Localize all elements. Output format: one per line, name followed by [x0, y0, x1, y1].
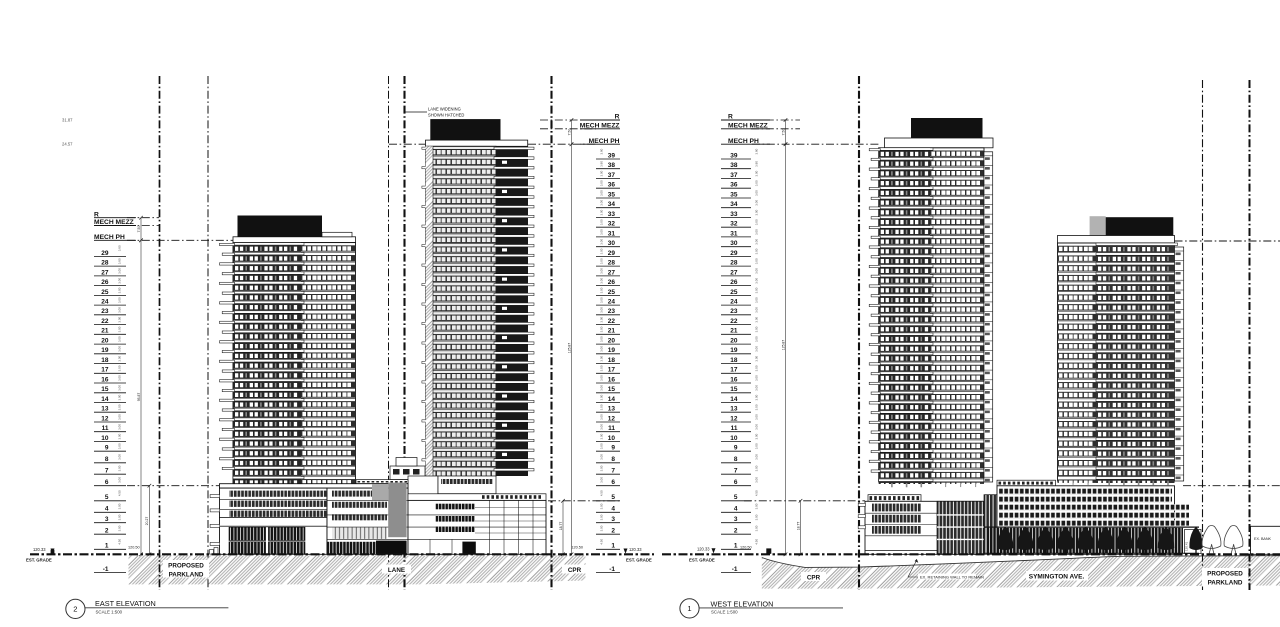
svg-text:3.00: 3.00: [755, 525, 759, 531]
svg-text:125.87: 125.87: [567, 343, 571, 353]
svg-text:3.80: 3.80: [755, 161, 759, 167]
svg-text:3.00: 3.00: [118, 316, 122, 322]
svg-text:3.00: 3.00: [600, 219, 604, 225]
svg-text:13: 13: [101, 406, 109, 413]
svg-text:3.00: 3.00: [600, 394, 604, 400]
svg-text:3.00: 3.00: [755, 514, 759, 520]
svg-text:17: 17: [730, 367, 738, 374]
svg-text:1: 1: [734, 543, 738, 550]
svg-text:29: 29: [730, 250, 738, 257]
svg-text:3.00: 3.00: [600, 477, 604, 483]
svg-text:8: 8: [105, 456, 109, 463]
svg-text:CPR: CPR: [807, 575, 821, 582]
svg-text:3.00: 3.00: [755, 336, 759, 342]
svg-text:14: 14: [101, 396, 109, 403]
svg-text:EST. GRADE: EST. GRADE: [689, 558, 715, 563]
svg-text:3.00: 3.00: [600, 424, 604, 430]
svg-text:1: 1: [687, 604, 691, 613]
svg-text:38: 38: [608, 162, 616, 169]
svg-text:7: 7: [611, 468, 615, 475]
svg-text:3.00: 3.00: [755, 355, 759, 361]
svg-text:3.00: 3.00: [600, 248, 604, 254]
svg-text:3: 3: [105, 516, 109, 523]
svg-text:24.57: 24.57: [62, 142, 73, 147]
svg-text:9: 9: [611, 445, 615, 452]
svg-text:28: 28: [730, 260, 738, 267]
svg-text:3.00: 3.00: [600, 514, 604, 520]
svg-text:3.00: 3.00: [600, 454, 604, 460]
svg-text:3.00: 3.00: [600, 180, 604, 186]
svg-text:LANE: LANE: [388, 567, 405, 574]
svg-text:3.00: 3.00: [755, 278, 759, 284]
svg-text:8: 8: [611, 456, 615, 463]
svg-text:120.33: 120.33: [33, 547, 46, 552]
svg-text:3.80: 3.80: [118, 245, 122, 251]
svg-text:3.00: 3.00: [600, 365, 604, 371]
svg-text:3.00: 3.00: [755, 170, 759, 176]
svg-text:1: 1: [611, 543, 615, 550]
svg-text:19: 19: [608, 347, 616, 354]
svg-text:3.00: 3.00: [600, 443, 604, 449]
svg-text:22: 22: [101, 318, 109, 325]
svg-text:3.00: 3.00: [118, 433, 122, 439]
svg-text:3.00: 3.00: [600, 404, 604, 410]
svg-text:SHOWN HATCHED: SHOWN HATCHED: [428, 113, 464, 118]
svg-text:21: 21: [101, 328, 109, 335]
svg-text:3.00: 3.00: [755, 385, 759, 391]
svg-text:20: 20: [730, 338, 738, 345]
svg-text:10: 10: [730, 435, 738, 442]
svg-text:3.00: 3.00: [755, 200, 759, 206]
svg-text:3.00: 3.00: [118, 385, 122, 391]
svg-text:27: 27: [608, 269, 616, 276]
svg-text:32: 32: [608, 221, 616, 228]
svg-text:3.80: 3.80: [600, 161, 604, 167]
svg-text:3.00: 3.00: [118, 268, 122, 274]
svg-text:3.00: 3.00: [755, 394, 759, 400]
svg-text:3.00: 3.00: [755, 404, 759, 410]
svg-text:6: 6: [105, 479, 109, 486]
svg-text:7.50: 7.50: [567, 129, 571, 136]
svg-text:3.00: 3.00: [755, 180, 759, 186]
svg-text:14: 14: [730, 396, 738, 403]
svg-text:3.00: 3.00: [755, 239, 759, 245]
svg-text:1: 1: [105, 543, 109, 550]
svg-text:18: 18: [101, 357, 109, 364]
svg-text:3.00: 3.00: [600, 375, 604, 381]
svg-text:3.00: 3.00: [755, 414, 759, 420]
svg-text:EST. GRADE: EST. GRADE: [26, 558, 52, 563]
svg-text:SYMINGTON AVE.: SYMINGTON AVE.: [1029, 574, 1085, 581]
svg-text:3.00: 3.00: [600, 346, 604, 352]
svg-text:8: 8: [734, 456, 738, 463]
svg-text:5: 5: [611, 494, 615, 501]
svg-text:3.80: 3.80: [755, 148, 759, 154]
svg-text:26: 26: [730, 279, 738, 286]
svg-text:3.00: 3.00: [755, 365, 759, 371]
svg-text:EST. GRADE: EST. GRADE: [626, 558, 652, 563]
svg-text:120.41: 120.41: [1185, 541, 1189, 551]
svg-text:4.50: 4.50: [755, 490, 759, 496]
svg-text:3.00: 3.00: [600, 503, 604, 509]
svg-text:3.80: 3.80: [118, 258, 122, 264]
svg-text:4: 4: [611, 506, 615, 513]
svg-text:10: 10: [608, 435, 616, 442]
svg-text:3.00: 3.00: [600, 326, 604, 332]
svg-text:3.00: 3.00: [755, 454, 759, 460]
svg-text:2: 2: [611, 528, 615, 535]
svg-text:7.50: 7.50: [781, 129, 785, 136]
svg-text:4: 4: [734, 506, 738, 513]
svg-text:120.50: 120.50: [128, 546, 140, 550]
svg-text:3.00: 3.00: [755, 248, 759, 254]
svg-text:3.00: 3.00: [755, 346, 759, 352]
svg-text:-1: -1: [732, 566, 738, 573]
svg-text:3.00: 3.00: [118, 355, 122, 361]
svg-text:3.00: 3.00: [118, 365, 122, 371]
svg-text:3.00: 3.00: [600, 355, 604, 361]
svg-text:3.00: 3.00: [118, 424, 122, 430]
svg-text:4.50: 4.50: [118, 490, 122, 496]
svg-text:35: 35: [608, 191, 616, 198]
svg-text:3.00: 3.00: [600, 465, 604, 471]
svg-text:3.00: 3.00: [755, 268, 759, 274]
svg-text:34: 34: [730, 201, 738, 208]
svg-text:3.00: 3.00: [600, 200, 604, 206]
svg-text:20: 20: [101, 338, 109, 345]
svg-text:30: 30: [730, 240, 738, 247]
svg-text:31: 31: [730, 230, 738, 237]
svg-text:PROPOSED: PROPOSED: [168, 563, 204, 570]
svg-text:4.50: 4.50: [118, 539, 122, 545]
svg-text:24: 24: [730, 299, 738, 306]
svg-text:19: 19: [730, 347, 738, 354]
svg-text:6: 6: [611, 479, 615, 486]
svg-text:25: 25: [730, 289, 738, 296]
svg-text:14: 14: [608, 396, 616, 403]
svg-text:10: 10: [101, 435, 109, 442]
svg-text:16: 16: [730, 376, 738, 383]
svg-text:2: 2: [105, 528, 109, 535]
svg-text:3.00: 3.00: [755, 433, 759, 439]
svg-text:3.00: 3.00: [600, 190, 604, 196]
svg-text:35: 35: [730, 191, 738, 198]
svg-text:WEST ELEVATION: WEST ELEVATION: [711, 599, 774, 608]
svg-text:3.00: 3.00: [755, 258, 759, 264]
svg-text:37: 37: [730, 172, 738, 179]
svg-text:3.00: 3.00: [755, 375, 759, 381]
svg-text:-1: -1: [609, 566, 615, 573]
svg-text:39: 39: [608, 152, 616, 159]
svg-text:20: 20: [608, 338, 616, 345]
svg-text:EX. BANK: EX. BANK: [1254, 537, 1272, 541]
svg-text:13: 13: [608, 406, 616, 413]
svg-text:3.00: 3.00: [755, 287, 759, 293]
svg-text:3.00: 3.00: [118, 278, 122, 284]
svg-text:28: 28: [608, 260, 616, 267]
svg-text:34: 34: [608, 201, 616, 208]
svg-text:25: 25: [608, 289, 616, 296]
svg-text:20.27: 20.27: [145, 517, 149, 526]
svg-text:4.50: 4.50: [755, 539, 759, 545]
svg-text:3.00: 3.00: [755, 307, 759, 313]
svg-text:3.00: 3.00: [118, 326, 122, 332]
svg-text:3.00: 3.00: [600, 258, 604, 264]
svg-text:11: 11: [102, 425, 109, 432]
svg-text:19: 19: [101, 347, 109, 354]
svg-text:3.00: 3.00: [755, 209, 759, 215]
svg-text:3.00: 3.00: [600, 433, 604, 439]
svg-text:3.00: 3.00: [755, 326, 759, 332]
svg-text:3.00: 3.00: [118, 307, 122, 313]
svg-text:23: 23: [608, 308, 616, 315]
svg-text:3.00: 3.00: [118, 287, 122, 293]
svg-text:6: 6: [734, 479, 738, 486]
svg-text:9: 9: [734, 445, 738, 452]
svg-text:3.00: 3.00: [755, 190, 759, 196]
svg-text:4: 4: [105, 506, 109, 513]
svg-text:3.00: 3.00: [118, 465, 122, 471]
svg-text:3.00: 3.00: [600, 316, 604, 322]
svg-text:27: 27: [730, 269, 738, 276]
svg-text:3.00: 3.00: [118, 503, 122, 509]
svg-text:27: 27: [101, 269, 109, 276]
svg-text:23: 23: [730, 308, 738, 315]
svg-text:3.00: 3.00: [118, 454, 122, 460]
svg-text:PROPOSED: PROPOSED: [1207, 571, 1243, 578]
svg-text:3.00: 3.00: [600, 287, 604, 293]
svg-text:7.50: 7.50: [137, 226, 141, 233]
svg-text:3.00: 3.00: [600, 278, 604, 284]
svg-text:120.33: 120.33: [697, 547, 710, 552]
svg-text:17: 17: [608, 367, 616, 374]
svg-text:13: 13: [730, 406, 738, 413]
svg-text:3.00: 3.00: [755, 424, 759, 430]
svg-text:3.00: 3.00: [600, 229, 604, 235]
svg-text:3.00: 3.00: [600, 525, 604, 531]
svg-text:18: 18: [730, 357, 738, 364]
svg-text:16: 16: [608, 376, 616, 383]
svg-text:31.87: 31.87: [62, 118, 73, 123]
svg-text:39: 39: [730, 152, 738, 159]
svg-text:LANE WIDENING: LANE WIDENING: [428, 107, 461, 112]
svg-text:SCALE 1:500: SCALE 1:500: [96, 609, 123, 614]
svg-text:15: 15: [608, 386, 616, 393]
svg-text:3.00: 3.00: [755, 219, 759, 225]
svg-text:29: 29: [608, 250, 616, 257]
svg-text:3.00: 3.00: [600, 170, 604, 176]
svg-text:17: 17: [101, 367, 109, 374]
svg-text:EX. RETAINING WALL TO REMAIN: EX. RETAINING WALL TO REMAIN: [920, 575, 984, 580]
svg-text:12: 12: [101, 415, 109, 422]
svg-text:2: 2: [73, 605, 77, 614]
svg-text:29: 29: [101, 250, 109, 257]
svg-text:22: 22: [730, 318, 738, 325]
svg-text:3.00: 3.00: [600, 239, 604, 245]
svg-text:12: 12: [608, 415, 616, 422]
svg-text:33: 33: [608, 211, 616, 218]
svg-text:5: 5: [105, 494, 109, 501]
svg-text:21: 21: [730, 328, 738, 335]
svg-text:2: 2: [734, 528, 738, 535]
svg-text:11: 11: [608, 425, 615, 432]
svg-text:3.00: 3.00: [118, 375, 122, 381]
svg-text:12: 12: [730, 415, 738, 422]
svg-text:3.00: 3.00: [600, 297, 604, 303]
svg-text:24: 24: [608, 299, 616, 306]
svg-text:11: 11: [731, 425, 738, 432]
svg-text:-1: -1: [103, 566, 109, 573]
svg-text:7: 7: [734, 468, 738, 475]
svg-text:3.00: 3.00: [600, 209, 604, 215]
svg-text:PARKLAND: PARKLAND: [169, 572, 204, 579]
svg-text:3.00: 3.00: [600, 336, 604, 342]
svg-text:32: 32: [730, 221, 738, 228]
svg-text:36: 36: [608, 182, 616, 189]
svg-text:7: 7: [105, 468, 109, 475]
svg-text:120.33: 120.33: [629, 547, 642, 552]
svg-text:38: 38: [730, 162, 738, 169]
svg-text:5: 5: [734, 494, 738, 501]
svg-text:CPR: CPR: [568, 567, 582, 574]
svg-text:18.77: 18.77: [559, 522, 563, 531]
svg-text:3.00: 3.00: [600, 307, 604, 313]
svg-text:3.00: 3.00: [118, 394, 122, 400]
svg-text:3.00: 3.00: [118, 514, 122, 520]
svg-text:R: R: [615, 114, 620, 121]
svg-text:18: 18: [608, 357, 616, 364]
svg-text:31: 31: [608, 230, 616, 237]
svg-text:15: 15: [101, 386, 109, 393]
svg-text:33: 33: [730, 211, 738, 218]
svg-text:3.00: 3.00: [755, 443, 759, 449]
svg-text:3.00: 3.00: [755, 477, 759, 483]
svg-text:18.77: 18.77: [796, 522, 800, 531]
svg-text:16: 16: [101, 376, 109, 383]
svg-text:3.00: 3.00: [118, 297, 122, 303]
svg-text:4.50: 4.50: [600, 539, 604, 545]
svg-text:15: 15: [730, 386, 738, 393]
svg-text:3.00: 3.00: [600, 268, 604, 274]
svg-text:120.50: 120.50: [740, 546, 752, 550]
svg-text:125.87: 125.87: [781, 340, 785, 350]
svg-text:3.00: 3.00: [118, 443, 122, 449]
svg-text:24: 24: [101, 299, 109, 306]
svg-text:MECH MEZZ: MECH MEZZ: [580, 122, 620, 129]
svg-text:EAST ELEVATION: EAST ELEVATION: [95, 599, 156, 608]
svg-text:3.00: 3.00: [118, 336, 122, 342]
svg-text:3.00: 3.00: [755, 297, 759, 303]
svg-text:26: 26: [608, 279, 616, 286]
svg-text:3.00: 3.00: [118, 346, 122, 352]
svg-text:21: 21: [608, 328, 616, 335]
svg-text:26: 26: [101, 279, 109, 286]
svg-text:3.00: 3.00: [755, 465, 759, 471]
svg-text:22: 22: [608, 318, 616, 325]
svg-text:3: 3: [734, 516, 738, 523]
svg-text:PARKLAND: PARKLAND: [1208, 580, 1243, 587]
svg-text:MECH MEZZ: MECH MEZZ: [728, 122, 768, 129]
svg-text:3.00: 3.00: [118, 525, 122, 531]
svg-text:R: R: [728, 114, 733, 121]
svg-text:3.00: 3.00: [118, 477, 122, 483]
svg-text:37: 37: [608, 172, 616, 179]
svg-text:4.50: 4.50: [600, 490, 604, 496]
svg-text:36: 36: [730, 182, 738, 189]
svg-text:SCALE 1:500: SCALE 1:500: [711, 610, 738, 615]
svg-text:3.00: 3.00: [118, 414, 122, 420]
svg-text:3.00: 3.00: [755, 229, 759, 235]
svg-text:120.50: 120.50: [571, 546, 583, 550]
svg-text:3.00: 3.00: [600, 414, 604, 420]
svg-text:25: 25: [101, 289, 109, 296]
svg-text:28: 28: [101, 260, 109, 267]
svg-text:95.87: 95.87: [137, 393, 141, 402]
svg-text:3: 3: [611, 516, 615, 523]
svg-text:MECH PH: MECH PH: [94, 234, 125, 241]
svg-text:3.00: 3.00: [755, 316, 759, 322]
svg-text:3.00: 3.00: [118, 404, 122, 410]
svg-text:3.80: 3.80: [600, 148, 604, 154]
svg-text:3.00: 3.00: [600, 385, 604, 391]
svg-text:3.00: 3.00: [755, 503, 759, 509]
svg-text:30: 30: [608, 240, 616, 247]
svg-text:9: 9: [105, 445, 109, 452]
svg-text:23: 23: [101, 308, 109, 315]
